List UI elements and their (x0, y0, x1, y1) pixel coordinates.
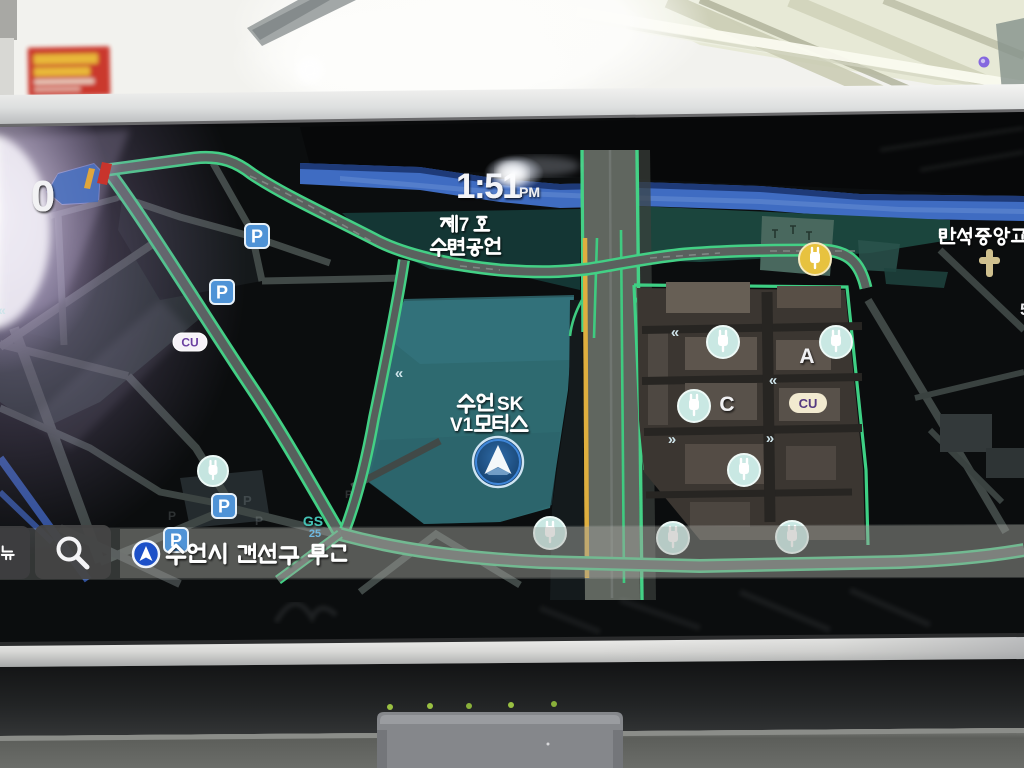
svg-text:A: A (799, 345, 814, 368)
svg-text:CU: CU (799, 396, 818, 411)
svg-text:CU: CU (181, 336, 198, 350)
svg-text:SK: SK (497, 394, 524, 415)
svg-text:P: P (255, 514, 263, 528)
svg-text:25: 25 (309, 528, 321, 540)
svg-text:«: « (395, 365, 403, 382)
svg-text:C: C (719, 393, 734, 416)
svg-text:V1: V1 (450, 415, 474, 436)
svg-text:7: 7 (459, 215, 470, 236)
svg-text:P: P (345, 489, 352, 501)
svg-text:0: 0 (31, 172, 55, 221)
svg-text:P: P (251, 227, 263, 247)
svg-text:P: P (216, 283, 228, 303)
svg-text:»: » (766, 430, 774, 447)
svg-text:5: 5 (1020, 300, 1024, 319)
svg-text:P: P (243, 493, 252, 508)
svg-text:«: « (769, 372, 777, 389)
svg-text:P: P (168, 509, 176, 523)
svg-text:P: P (218, 497, 230, 517)
svg-text:GS: GS (303, 513, 323, 529)
svg-text:«: « (671, 324, 679, 341)
svg-text:«: « (0, 302, 6, 318)
svg-text:»: » (668, 431, 676, 448)
